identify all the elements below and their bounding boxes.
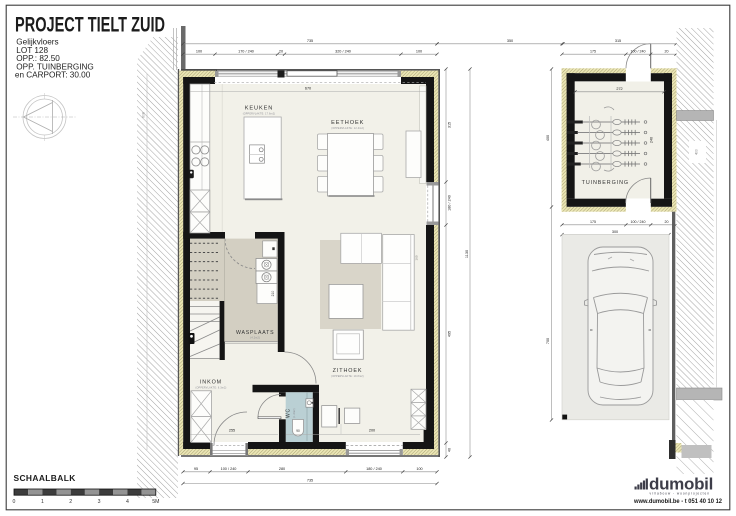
svg-text:TUINBERGING: TUINBERGING (582, 180, 629, 186)
svg-text:INKOM: INKOM (200, 380, 222, 386)
svg-text:315: 315 (448, 122, 452, 128)
svg-text:350: 350 (507, 39, 513, 43)
svg-text:ZITHOEK: ZITHOEK (333, 368, 363, 374)
svg-text:20: 20 (665, 220, 669, 224)
svg-text:700: 700 (546, 338, 550, 344)
svg-text:20: 20 (665, 49, 669, 53)
svg-text:180 / 240: 180 / 240 (448, 195, 452, 211)
svg-text:400: 400 (546, 135, 550, 141)
svg-text:20: 20 (279, 49, 283, 53)
svg-text:180 / 240: 180 / 240 (366, 467, 382, 471)
svg-text:SCHAALBALK: SCHAALBALK (14, 473, 76, 483)
svg-text:160: 160 (415, 255, 419, 260)
svg-text:735: 735 (307, 479, 313, 483)
svg-text:175: 175 (590, 49, 596, 53)
svg-text:1130: 1130 (465, 250, 469, 258)
svg-text:WASPLAATS: WASPLAATS (236, 330, 274, 336)
svg-text:2: 2 (69, 499, 72, 505)
svg-text:95: 95 (194, 467, 198, 471)
svg-text:(OPPERVLAKTE: 17.6m2): (OPPERVLAKTE: 17.6m2) (243, 113, 276, 116)
svg-text:315: 315 (615, 39, 621, 43)
svg-text:4: 4 (126, 499, 129, 505)
svg-text:400: 400 (695, 149, 699, 155)
svg-text:(OPPERVLAKTE: 19.8m2): (OPPERVLAKTE: 19.8m2) (331, 375, 364, 378)
svg-text:735: 735 (307, 39, 313, 43)
svg-text:495: 495 (448, 331, 452, 337)
svg-text:210: 210 (271, 291, 275, 297)
svg-text:255: 255 (229, 429, 235, 433)
svg-text:40: 40 (448, 448, 452, 452)
svg-text:1: 1 (41, 499, 44, 505)
svg-text:100 / 240: 100 / 240 (631, 220, 646, 224)
svg-text:en CARPORT: 30.00: en CARPORT: 30.00 (15, 71, 91, 80)
svg-text:100 / 240: 100 / 240 (221, 467, 237, 471)
svg-text:PROJECT TIELT ZUID: PROJECT TIELT ZUID (15, 14, 165, 37)
svg-text:(OPPERVLAKTE: 12.4m2): (OPPERVLAKTE: 12.4m2) (331, 127, 364, 130)
svg-text:(4.2m2): (4.2m2) (250, 337, 260, 340)
svg-text:320 / 240: 320 / 240 (335, 49, 351, 53)
svg-text:100: 100 (416, 467, 422, 471)
svg-text:0: 0 (13, 499, 16, 505)
svg-text:5M: 5M (152, 499, 159, 505)
svg-text:KEUKEN: KEUKEN (245, 106, 273, 112)
svg-text:100: 100 (196, 49, 202, 53)
svg-text:EETHOEK: EETHOEK (331, 120, 364, 126)
svg-text:(1.3m2): (1.3m2) (293, 408, 296, 418)
svg-text:www.dumobil.be - t 051 40 10 1: www.dumobil.be - t 051 40 10 12 (633, 498, 722, 505)
svg-text:villabouw - woonprojecten: villabouw - woonprojecten (650, 492, 710, 496)
svg-text:100 / 240: 100 / 240 (631, 49, 646, 53)
svg-text:(OPPERVLAKTE: 6.3m2): (OPPERVLAKTE: 6.3m2) (195, 387, 226, 390)
svg-text:300: 300 (612, 230, 618, 234)
svg-text:90: 90 (296, 429, 300, 433)
svg-text:272: 272 (616, 87, 622, 91)
svg-text:175: 175 (590, 220, 596, 224)
svg-text:WC: WC (286, 408, 292, 418)
svg-text:240: 240 (650, 137, 654, 143)
svg-text:100: 100 (416, 49, 422, 53)
svg-text:200: 200 (369, 429, 375, 433)
svg-text:608: 608 (142, 112, 146, 118)
svg-text:3: 3 (98, 499, 101, 505)
svg-text:280: 280 (279, 467, 285, 471)
svg-text:170 / 240: 170 / 240 (238, 49, 254, 53)
svg-text:670: 670 (305, 87, 311, 91)
